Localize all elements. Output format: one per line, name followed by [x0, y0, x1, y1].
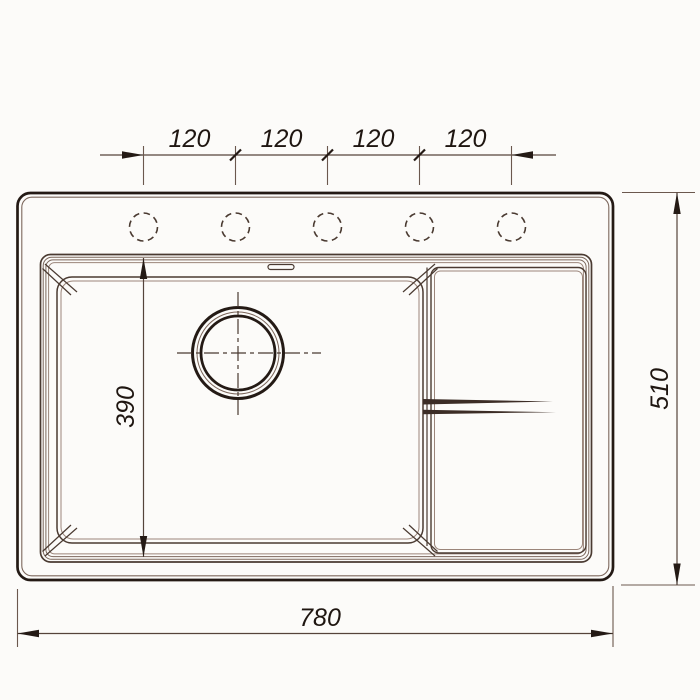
dim-label-bowl-width: 390	[112, 386, 140, 428]
dim-label-hole-spacing-2: 120	[261, 125, 303, 153]
dim-label-hole-spacing-3: 120	[353, 125, 395, 153]
drain	[177, 292, 321, 418]
drawing-canvas: 120 120 120 120 390 510 780	[0, 0, 700, 700]
sink-outer-body	[18, 193, 614, 580]
drainboard	[423, 268, 586, 554]
dim-label-hole-spacing-4: 120	[445, 125, 487, 153]
dim-label-overall-width: 780	[299, 604, 341, 632]
faucet-hole	[314, 213, 342, 241]
arrowhead-up	[140, 258, 147, 279]
faucet-hole	[498, 213, 526, 241]
dimension-bowl-width: 390	[112, 258, 147, 557]
arrowhead-right	[591, 630, 613, 637]
drainboard-edge	[431, 268, 586, 554]
dimension-overall-depth: 510	[621, 193, 695, 586]
faucet-holes	[130, 213, 526, 241]
dimension-top-hole-spacing: 120 120 120 120	[100, 125, 556, 185]
faucet-hole	[130, 213, 158, 241]
dim-label-hole-spacing-1: 120	[169, 125, 211, 153]
drainboard-groove-lower	[423, 410, 556, 414]
sink-outer-edge	[18, 193, 614, 580]
arrowhead-up	[673, 193, 680, 215]
dim-label-overall-depth: 510	[646, 368, 674, 410]
dimension-overall-width: 780	[18, 586, 614, 647]
overflow-notch	[268, 265, 294, 270]
drainboard-groove-upper	[423, 399, 553, 405]
faucet-hole	[406, 213, 434, 241]
arrowhead-right	[512, 151, 534, 158]
drainboard-inner-line	[435, 271, 583, 550]
arrowhead-left	[18, 630, 40, 637]
arrowhead-left	[122, 151, 144, 158]
sink-technical-drawing: 120 120 120 120 390 510 780	[0, 0, 700, 700]
faucet-hole	[222, 213, 250, 241]
main-bowl	[43, 264, 438, 556]
arrowhead-down	[673, 564, 680, 586]
